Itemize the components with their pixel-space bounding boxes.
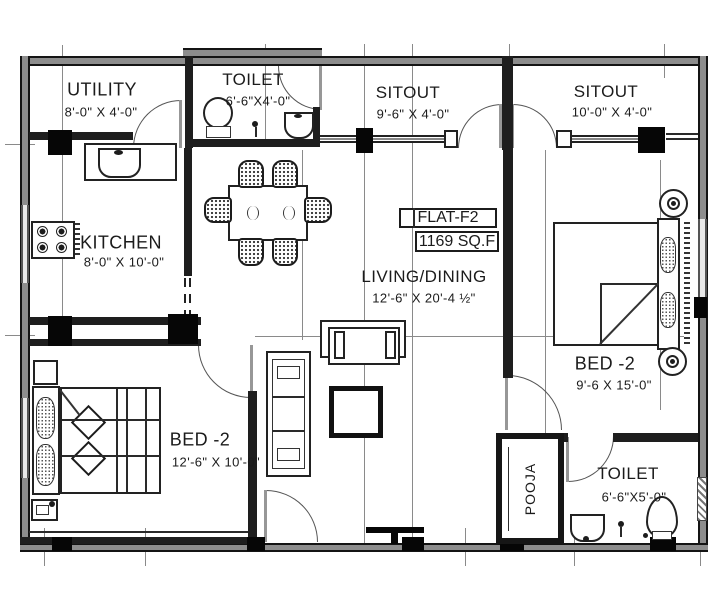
wall-top <box>20 56 708 66</box>
dining-table <box>228 185 308 241</box>
entrance-threshold-stem <box>391 533 398 544</box>
stove-burner-icon <box>56 226 67 237</box>
room-dims-kitchen: 8'-0" X 10'-0" <box>84 255 165 270</box>
column <box>247 537 265 551</box>
flat-area: 1169 SQ.F <box>419 233 495 251</box>
pillow <box>36 444 55 486</box>
sofa-armrest <box>334 331 345 359</box>
door-arc-sitout-left <box>458 104 502 148</box>
loveseat-divider <box>272 430 305 432</box>
faucet-icon <box>583 536 589 542</box>
grid-centerline <box>302 150 303 340</box>
railing-post <box>556 130 572 148</box>
railing-post <box>444 130 458 148</box>
room-dims-toilet-top: 6'-6"X4'-0" <box>226 94 291 109</box>
plaid-line <box>116 389 118 492</box>
door-leaf <box>505 376 508 430</box>
sofa-armrest <box>385 331 396 359</box>
room-label-toilet-bottom: TOILET <box>597 464 659 484</box>
door-arc-utility <box>133 100 181 148</box>
faucet-icon <box>114 150 123 155</box>
room-dims-bed-right: 9'-6 X 15'-0" <box>576 378 651 393</box>
wall-kitchen-divider-dashed <box>189 278 191 318</box>
wall-kitchen-divider-dashed <box>184 278 186 318</box>
pooja-inner-line <box>508 447 509 531</box>
faucet-icon <box>294 114 302 118</box>
column <box>168 314 198 344</box>
room-dims-living: 12'-6" X 20'-4 ½" <box>372 291 475 306</box>
pillow <box>660 237 676 273</box>
flat-area-box: 1169 SQ.F <box>415 231 499 252</box>
plaid-line <box>126 389 128 492</box>
stove-burner-icon <box>37 226 48 237</box>
plaid-line <box>62 455 160 457</box>
wall-living-bed-divider <box>503 148 513 378</box>
pillow <box>36 397 55 439</box>
room-label-sitout-left: SITOUT <box>376 83 440 103</box>
column <box>638 127 665 153</box>
room-dims-toilet-bottom: 6'-6"X5'-0" <box>602 490 667 505</box>
column <box>48 316 72 346</box>
plate-icon <box>283 206 295 220</box>
tv-unit-dot <box>49 501 55 507</box>
wall-toilet-top-left <box>185 56 193 148</box>
wardrobe-strip <box>684 222 690 346</box>
door-leaf <box>179 100 182 148</box>
room-dims-bed-left: 12'-6" X 10'-0" <box>172 455 260 470</box>
flat-label-box-divider <box>413 208 415 228</box>
blanket-line <box>600 283 602 345</box>
door-leaf <box>319 66 322 110</box>
column <box>356 128 373 153</box>
bedside-table-dot <box>671 201 676 206</box>
wall-toilet-bottom-top <box>613 433 698 442</box>
grid-centerline <box>364 44 365 544</box>
wall-toilet-top-right <box>313 107 320 147</box>
column <box>48 130 72 155</box>
stove-burner-icon <box>37 242 48 253</box>
loveseat-divider <box>272 396 305 398</box>
dining-chair <box>238 160 264 188</box>
blanket-line <box>600 283 658 285</box>
window-bed-left <box>21 398 29 478</box>
room-dims-sitout-right: 10'-0" X 4'-0" <box>572 105 653 120</box>
wall-line <box>29 531 255 533</box>
plaid-line <box>62 419 160 421</box>
wall-line <box>666 133 698 135</box>
column <box>402 537 424 551</box>
plate-icon <box>247 206 259 220</box>
tap-icon <box>620 527 622 537</box>
sitout-railing <box>320 135 357 143</box>
room-label-pooja: POOJA <box>522 463 538 515</box>
wall-kitchen-divider <box>184 148 192 276</box>
loveseat-armrest <box>277 366 300 379</box>
column <box>52 537 72 551</box>
center-table <box>329 386 383 438</box>
wall-bottom <box>20 543 708 552</box>
bedside-table-dot <box>670 359 675 364</box>
window-toilet-vent <box>697 477 707 521</box>
loveseat-armrest <box>277 448 300 461</box>
room-label-sitout-right: SITOUT <box>574 82 638 102</box>
column <box>694 297 707 318</box>
dining-chair <box>204 197 232 223</box>
door-leaf <box>566 437 569 482</box>
pillow <box>660 292 676 328</box>
dining-chair <box>272 238 298 266</box>
window-bed-right <box>698 219 707 297</box>
toilet-wc-base <box>652 531 672 540</box>
door-arc-sitout-right <box>513 104 557 148</box>
tv-unit-inner <box>36 505 49 515</box>
room-label-bed-left: BED -2 <box>170 430 230 451</box>
door-arc-bed-right <box>507 375 562 430</box>
room-label-toilet-top: TOILET <box>222 70 284 90</box>
tap-icon <box>255 127 257 137</box>
wall-sitout-divider <box>502 56 513 150</box>
dining-chair <box>272 160 298 188</box>
plaid-line <box>145 389 147 492</box>
door-arc-bed-left <box>198 345 251 398</box>
room-label-kitchen: KITCHEN <box>80 233 162 254</box>
dining-chair <box>238 238 264 266</box>
window-kitchen <box>21 205 29 283</box>
room-label-utility: UTILITY <box>67 80 137 101</box>
flat-label: FLAT-F2 <box>417 209 478 227</box>
wall-line <box>666 138 698 140</box>
wall-utility-bottom <box>29 132 133 140</box>
toilet-wc-tank <box>206 126 231 138</box>
sitout-railing <box>572 135 638 143</box>
room-dims-sitout-left: 9'-6" X 4'-0" <box>377 107 450 122</box>
door-arc-main-entrance <box>266 490 318 542</box>
sitout-railing <box>373 135 444 143</box>
stove-burner-icon <box>56 242 67 253</box>
side-table <box>33 360 58 385</box>
drain-icon <box>643 533 648 538</box>
room-label-bed-right: BED -2 <box>575 354 635 375</box>
room-dims-utility: 8'-0" X 4'-0" <box>65 105 138 120</box>
wall-toilet-top-protrude <box>183 48 322 58</box>
dining-chair <box>304 197 332 223</box>
wall-toilet-top-bottom <box>185 139 320 147</box>
floor-plan: UTILITY 8'-0" X 4'-0" TOILET 6'-6"X4'-0"… <box>0 0 723 600</box>
room-label-living: LIVING/DINING <box>361 267 486 287</box>
grid-centerline <box>62 45 63 335</box>
door-leaf <box>264 490 267 542</box>
